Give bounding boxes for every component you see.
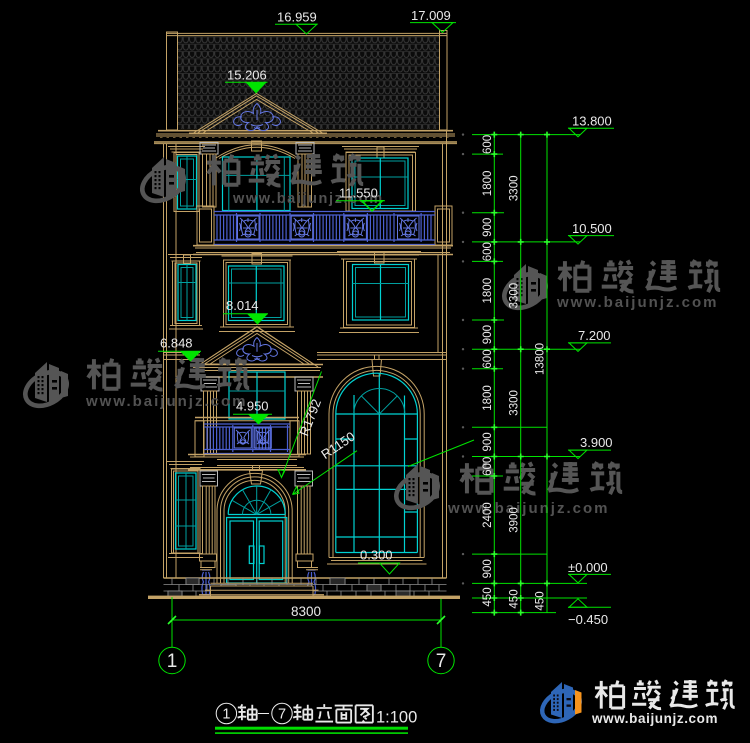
svg-text:450: 450 xyxy=(482,587,494,606)
svg-text:600: 600 xyxy=(482,457,494,476)
svg-text:15.206: 15.206 xyxy=(227,68,267,83)
svg-text:1800: 1800 xyxy=(482,278,494,304)
svg-text:600: 600 xyxy=(482,135,494,154)
svg-text:1: 1 xyxy=(222,707,230,723)
svg-text:600: 600 xyxy=(482,242,494,261)
svg-text:600: 600 xyxy=(482,349,494,368)
svg-text:900: 900 xyxy=(482,432,494,451)
svg-text:±0.000: ±0.000 xyxy=(568,560,608,575)
svg-text:8300: 8300 xyxy=(291,604,321,619)
svg-text:www.baijunjz.com: www.baijunjz.com xyxy=(591,711,718,726)
svg-text:17.009: 17.009 xyxy=(411,8,451,23)
svg-text:11.550: 11.550 xyxy=(339,186,378,201)
svg-text:900: 900 xyxy=(482,218,494,237)
svg-text:3300: 3300 xyxy=(508,390,520,416)
svg-text:450: 450 xyxy=(508,589,520,608)
svg-text:1:100: 1:100 xyxy=(376,709,417,727)
svg-text:7: 7 xyxy=(436,651,447,672)
svg-text:1800: 1800 xyxy=(482,385,494,411)
svg-text:1: 1 xyxy=(167,651,178,672)
svg-text:6.848: 6.848 xyxy=(160,336,193,351)
svg-text:4.950: 4.950 xyxy=(236,399,269,414)
svg-text:www.baijunjz.com: www.baijunjz.com xyxy=(447,500,609,517)
svg-text:www.baijunjz.com: www.baijunjz.com xyxy=(556,294,718,311)
svg-text:900: 900 xyxy=(482,325,494,344)
svg-text:13800: 13800 xyxy=(535,343,547,375)
svg-text:13.800: 13.800 xyxy=(572,114,612,129)
svg-text:2400: 2400 xyxy=(482,502,494,528)
svg-text:450: 450 xyxy=(535,591,547,610)
svg-text:16.959: 16.959 xyxy=(277,10,317,25)
svg-text:3300: 3300 xyxy=(508,283,520,309)
svg-text:R1150: R1150 xyxy=(318,429,357,462)
svg-text:900: 900 xyxy=(482,559,494,578)
svg-text:−0.450: −0.450 xyxy=(568,612,608,627)
svg-text:R1792: R1792 xyxy=(296,397,324,438)
svg-text:1800: 1800 xyxy=(482,171,494,197)
svg-text:www.baijunjz.com: www.baijunjz.com xyxy=(85,393,247,410)
svg-text:7: 7 xyxy=(278,707,286,723)
svg-text:7.200: 7.200 xyxy=(578,328,611,343)
svg-text:0.300: 0.300 xyxy=(360,548,393,563)
svg-text:3300: 3300 xyxy=(508,176,520,202)
svg-text:3900: 3900 xyxy=(508,507,520,533)
svg-text:3.900: 3.900 xyxy=(580,435,613,450)
svg-text:8.014: 8.014 xyxy=(226,298,259,313)
svg-text:10.500: 10.500 xyxy=(572,221,612,236)
